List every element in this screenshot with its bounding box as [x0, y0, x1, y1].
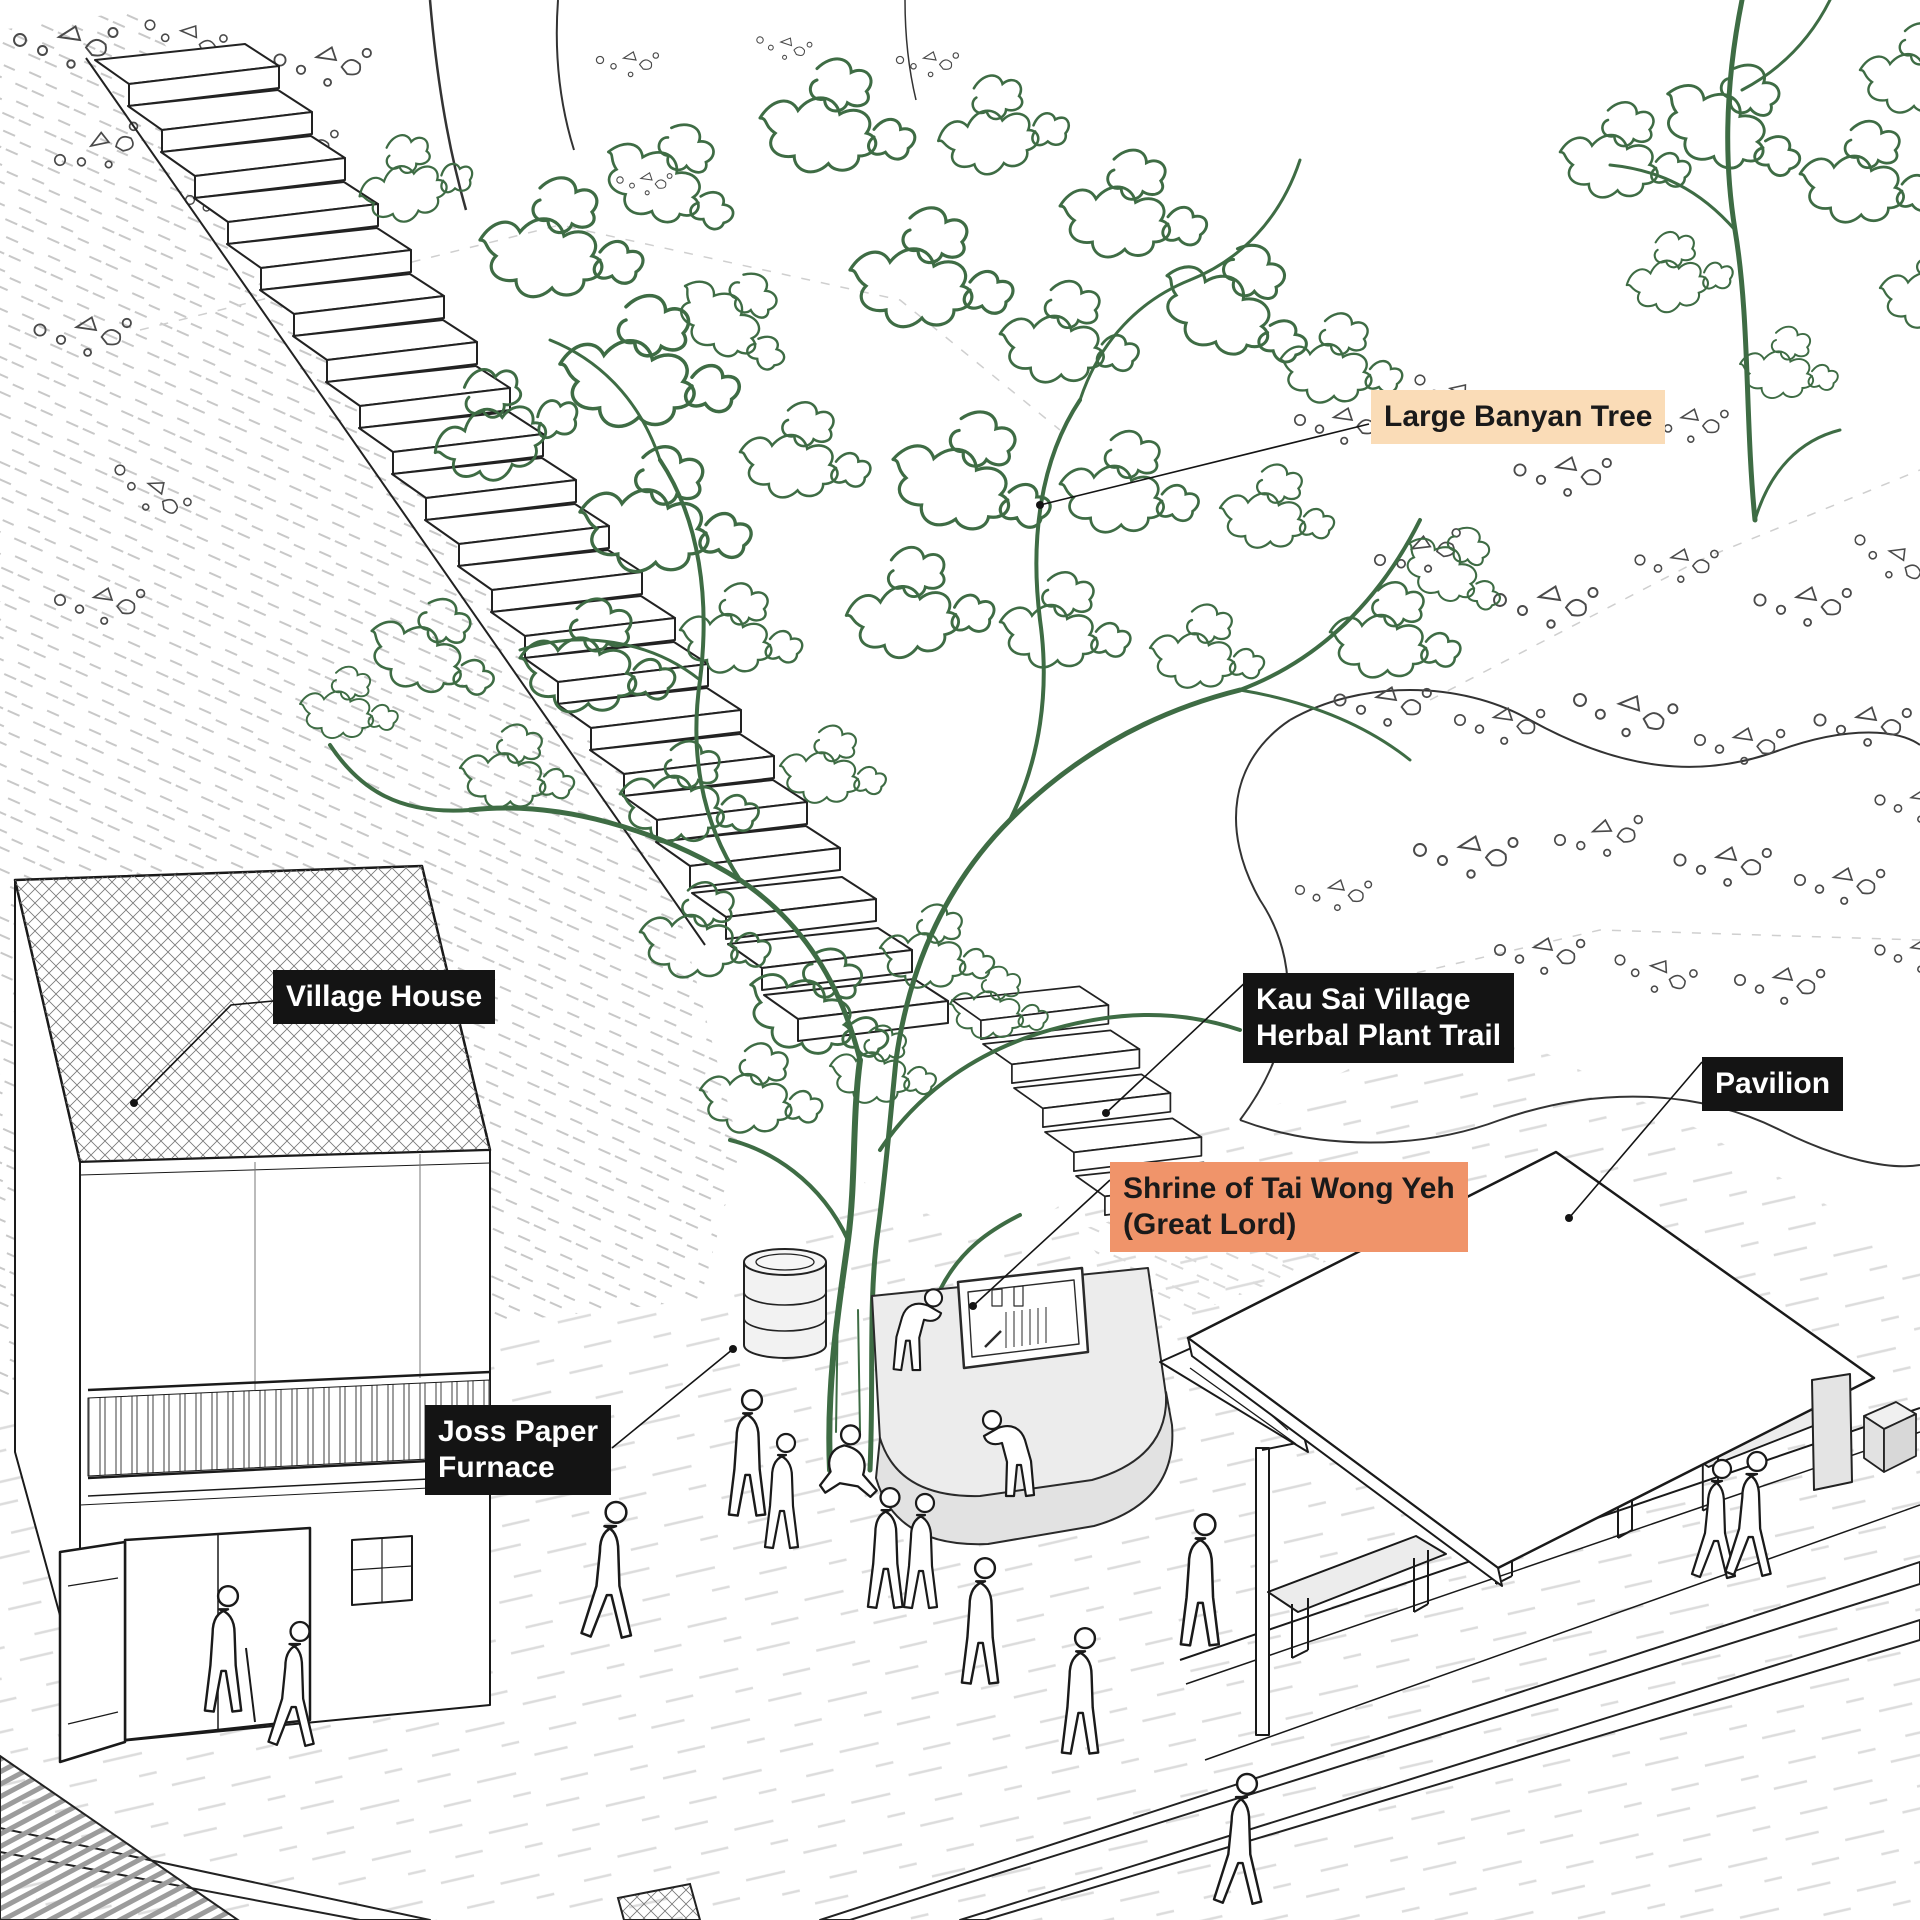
axonometric-drawing: [0, 0, 1920, 1920]
label-large-banyan-tree: Large Banyan Tree: [1371, 390, 1665, 444]
joss-paper-furnace: [744, 1249, 826, 1358]
pavilion-post: [1256, 1448, 1269, 1735]
sign-board: [1812, 1374, 1852, 1490]
label-joss-paper-furnace: Joss Paper Furnace: [425, 1405, 611, 1495]
label-village-house: Village House: [273, 970, 495, 1024]
label-herbal-plant-trail: Kau Sai Village Herbal Plant Trail: [1243, 973, 1514, 1063]
illustration-canvas: Large Banyan Tree Village House Kau Sai …: [0, 0, 1920, 1920]
background-tree-trunks: [430, 0, 916, 210]
shrine-altar: [958, 1268, 1088, 1368]
label-shrine: Shrine of Tai Wong Yeh (Great Lord): [1110, 1162, 1468, 1252]
label-pavilion: Pavilion: [1702, 1057, 1843, 1111]
house-window: [352, 1536, 412, 1605]
